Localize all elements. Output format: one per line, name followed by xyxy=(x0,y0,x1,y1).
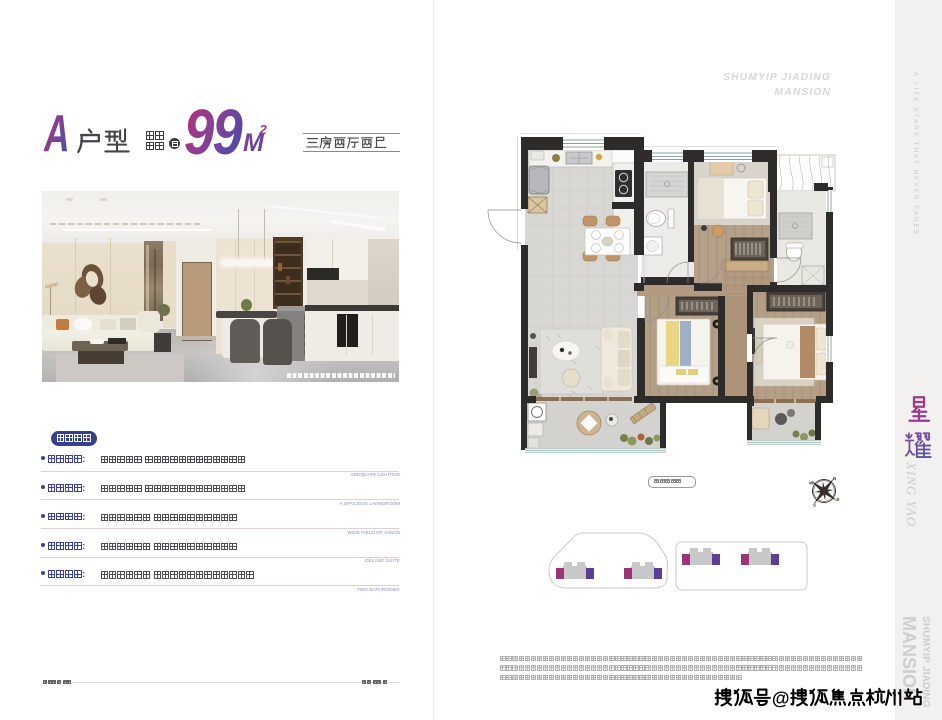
svg-text:W: W xyxy=(809,481,814,486)
svg-text:N: N xyxy=(833,476,837,481)
svg-text:S: S xyxy=(813,503,816,508)
svg-text:@: @ xyxy=(772,689,790,709)
svg-text:E: E xyxy=(836,497,839,502)
